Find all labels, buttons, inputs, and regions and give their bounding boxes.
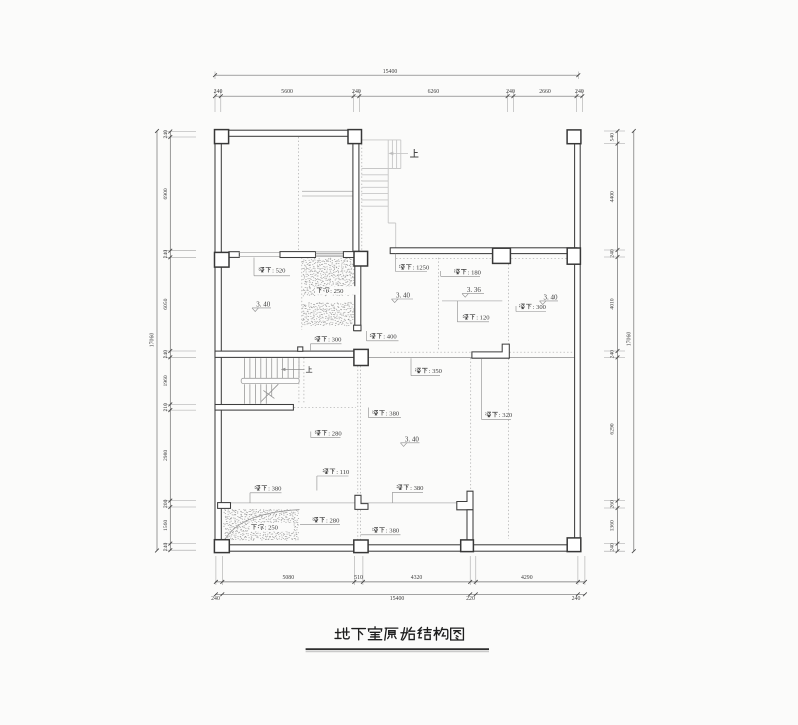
svg-text:210: 210 [163, 403, 169, 412]
svg-text:1360: 1360 [610, 520, 616, 531]
svg-text:: 250: : 250 [265, 525, 279, 532]
svg-text:: 280: : 280 [328, 430, 342, 437]
svg-text:1560: 1560 [163, 520, 169, 531]
svg-text:240: 240 [163, 543, 169, 552]
svg-text:6050: 6050 [163, 298, 169, 309]
svg-text:220: 220 [466, 596, 475, 602]
svg-text:: 180: : 180 [468, 269, 482, 276]
svg-text:2980: 2980 [163, 450, 169, 461]
svg-text:15400: 15400 [390, 596, 405, 602]
svg-text:: 380: : 380 [410, 485, 424, 492]
svg-text:240: 240 [163, 350, 169, 359]
svg-text:: 380: : 380 [386, 528, 400, 535]
svg-text:4320: 4320 [411, 575, 423, 581]
svg-text:240: 240 [211, 596, 220, 602]
svg-text:260: 260 [610, 500, 616, 509]
svg-text:3. 40: 3. 40 [544, 294, 559, 302]
svg-text:1960: 1960 [163, 375, 169, 386]
svg-text:: 380: : 380 [268, 486, 282, 493]
svg-text:240: 240 [610, 249, 616, 258]
svg-text:4010: 4010 [610, 298, 616, 309]
svg-text:4290: 4290 [521, 575, 533, 581]
svg-text:17060: 17060 [626, 332, 632, 347]
svg-text:4400: 4400 [610, 191, 616, 202]
svg-text:6290: 6290 [610, 423, 616, 434]
svg-text:6260: 6260 [428, 89, 440, 95]
svg-text:200: 200 [163, 499, 169, 508]
svg-text:: 300: : 300 [328, 337, 342, 344]
svg-text:: 400: : 400 [383, 334, 397, 341]
svg-text:240: 240 [610, 350, 616, 359]
svg-text:: 120: : 120 [476, 315, 490, 322]
svg-text:540: 540 [610, 133, 616, 142]
svg-text:240: 240 [163, 130, 169, 139]
svg-text:: 110: : 110 [336, 469, 350, 476]
svg-text:240: 240 [214, 89, 223, 95]
svg-text:: 300: : 300 [533, 304, 547, 311]
svg-text:: 350: : 350 [429, 368, 443, 375]
svg-text:3. 40: 3. 40 [396, 292, 411, 300]
svg-text:240: 240 [506, 89, 515, 95]
svg-text:17060: 17060 [150, 333, 156, 348]
svg-text:: 320: : 320 [499, 412, 513, 419]
svg-text:5600: 5600 [281, 89, 293, 95]
svg-text:: 280: : 280 [326, 517, 340, 524]
svg-text:: 520: : 520 [272, 267, 286, 274]
svg-text:240: 240 [572, 596, 581, 602]
svg-text:3. 40: 3. 40 [405, 435, 420, 443]
svg-text:: 250: : 250 [330, 288, 344, 295]
svg-text:510: 510 [354, 575, 363, 581]
svg-text:: 380: : 380 [386, 410, 400, 417]
svg-text:6900: 6900 [163, 188, 169, 199]
svg-text:240: 240 [610, 543, 616, 552]
svg-text:3. 36: 3. 36 [467, 286, 482, 294]
svg-text:3. 40: 3. 40 [256, 300, 271, 308]
svg-text:15400: 15400 [383, 69, 398, 75]
svg-text:2660: 2660 [539, 89, 551, 95]
svg-text:240: 240 [163, 250, 169, 259]
svg-text:5080: 5080 [283, 575, 295, 581]
svg-text:240: 240 [575, 89, 584, 95]
svg-text:: 1250: : 1250 [413, 265, 430, 272]
svg-text:240: 240 [352, 89, 361, 95]
